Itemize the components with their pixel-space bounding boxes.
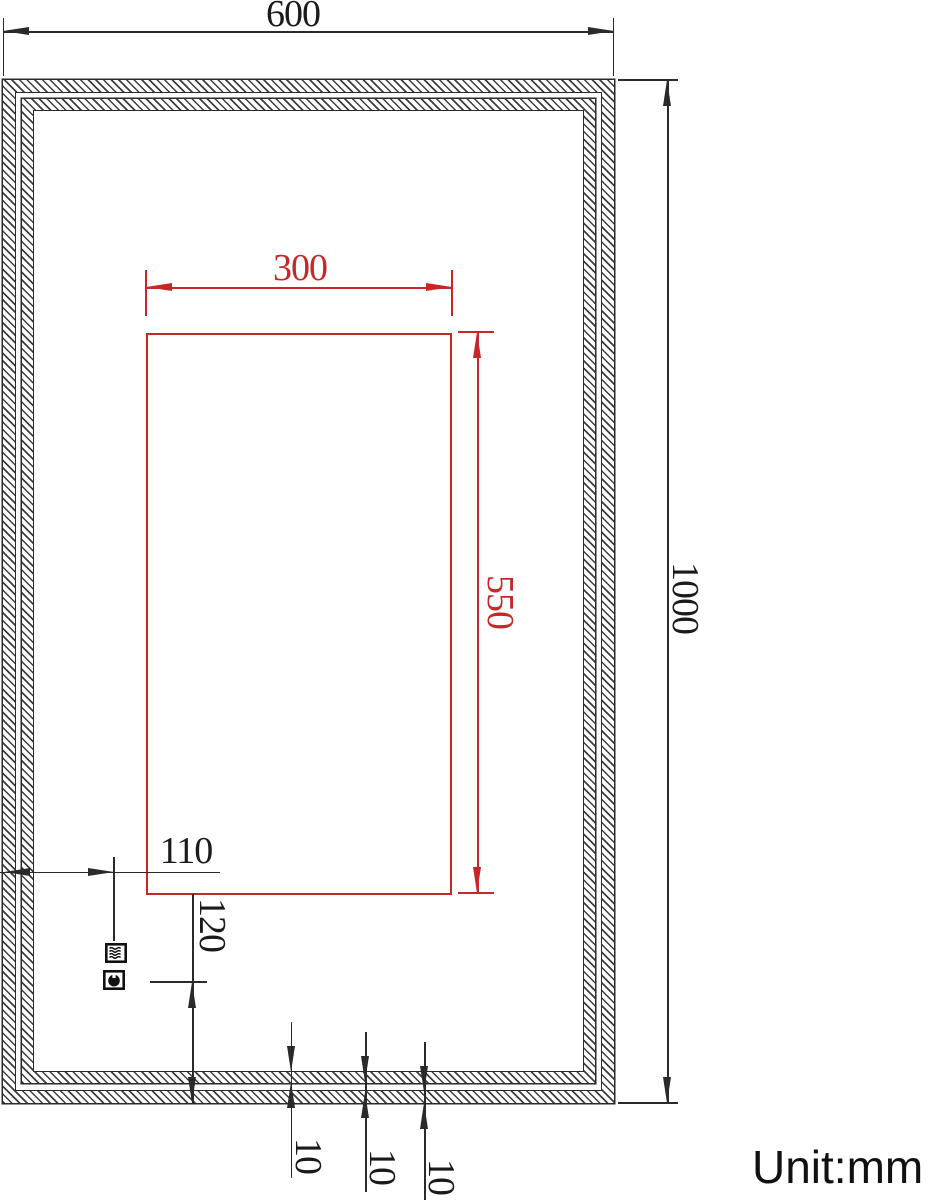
unit-label: Unit:mm (752, 1140, 923, 1194)
dim-110-arrow-left (4, 868, 30, 876)
dim-110-arrow-right (88, 868, 114, 876)
dim-10b-arrow-down (361, 1056, 369, 1082)
illuminated-window-outline (146, 333, 452, 895)
dim-110-label: 110 (136, 832, 236, 870)
dim-10b-label: 10 (363, 1117, 401, 1200)
dim-10c-arrow-down (420, 1066, 428, 1092)
defogger-icon (105, 943, 127, 968)
technical-drawing-canvas: 600 1000 300 550 110 (0, 0, 939, 1200)
dim-10a-arrow-down (287, 1046, 295, 1072)
dim-120-label: 120 (193, 875, 231, 975)
dim-300-arrow-right (426, 283, 452, 291)
dim-300-arrow-left (146, 283, 172, 291)
dim-120-arrow-down (188, 1077, 196, 1103)
dim-600-arrow-left (3, 27, 29, 35)
dim-10b-arrow-up (361, 1092, 369, 1118)
dim-120-arrow-up (188, 982, 196, 1008)
dim-300-ext-left (145, 270, 147, 316)
dim-300-label: 300 (250, 249, 350, 287)
dim-550-label: 550 (481, 552, 519, 652)
dim-110-ext (113, 857, 115, 941)
dim-550-arrow-up (473, 332, 481, 358)
dim-550-arrow-down (473, 867, 481, 893)
dim-10c-label: 10 (422, 1127, 460, 1200)
dim-300-ext-right (451, 270, 453, 316)
dim-10a-arrow-up (287, 1082, 295, 1108)
dim-120-tick (150, 981, 207, 983)
dim-10a-label: 10 (289, 1106, 327, 1200)
dim-10c-arrow-up (420, 1103, 428, 1129)
dim-1000-label: 1000 (666, 548, 704, 648)
dim-600-arrow-right (588, 27, 614, 35)
dim-1000-arrow-down (663, 1077, 671, 1103)
dim-1000-arrow-up (663, 80, 671, 106)
touch-sensor-icon (103, 970, 125, 995)
dim-600-label: 600 (243, 0, 343, 33)
